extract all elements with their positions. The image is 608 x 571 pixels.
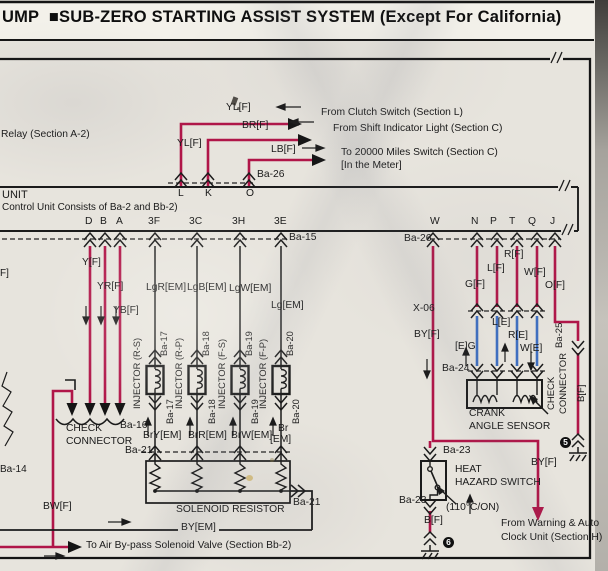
wire-label-we: W[E] — [520, 344, 542, 354]
wire-label-br-1: Br — [278, 424, 288, 434]
terminal-t: T — [509, 217, 515, 227]
terminal-w: W — [430, 217, 440, 227]
crank-sensor-label-2: ANGLE SENSOR — [469, 422, 550, 432]
edge-fragment: F] — [0, 269, 9, 279]
dest-warning-line1: From Warning & Auto — [501, 519, 599, 529]
wire-label-ge: [E]G — [455, 342, 476, 352]
solenoid-resistor-box — [146, 461, 290, 503]
junction-mark — [65, 380, 75, 390]
injector-fp-label: INJECTOR (F-P) — [259, 339, 268, 409]
connector-ba23-top: Ba-23 — [443, 446, 470, 456]
wire-label-lgb: LgB[EM] — [187, 283, 227, 293]
terminal-l: L — [178, 189, 184, 199]
wire-label-lf: L[F] — [487, 264, 505, 274]
check-connector-left-line1: CHECK — [66, 424, 102, 434]
paper-stain — [246, 475, 253, 481]
page-title: UMP ■SUB-ZERO STARTING ASSIST SYSTEM (Ex… — [2, 9, 561, 26]
wire-label-bw: BW[F] — [43, 502, 72, 512]
connector-ba26-top: Ba-26 — [257, 170, 284, 180]
wire-label-brw: BrW[EM] — [231, 431, 272, 441]
wire-label-le: L[E] — [492, 318, 510, 328]
wire-label-yb: YB[F] — [113, 306, 139, 316]
page-word-fragment: UMP — [2, 8, 39, 26]
wiring-diagram-page: UMP ■SUB-ZERO STARTING ASSIST SYSTEM (Ex… — [0, 0, 608, 571]
crank-sensor-label-1: CRANK — [469, 409, 505, 419]
paper-stain — [270, 458, 274, 462]
title-text: SUB-ZERO STARTING ASSIST SYSTEM (Except … — [59, 8, 561, 26]
injector-rp-label: INJECTOR (R-P) — [175, 338, 184, 409]
wire-label-byem: BY[EM] — [178, 523, 219, 533]
connector-ba18-top: Ba-18 — [202, 331, 211, 356]
check-connector-left-line2: CONNECTOR — [66, 437, 132, 447]
heat-switch-label-1: HEAT — [455, 465, 482, 475]
connector-ba18-bottom: Ba-18 — [208, 399, 217, 424]
terminal-d: D — [85, 217, 92, 227]
ground-number-5: 5 — [560, 437, 571, 448]
terminal-a: A — [116, 217, 123, 227]
wire-label-y: Y[F] — [82, 258, 101, 268]
connector-ba14: Ba-14 — [0, 465, 27, 475]
switch-temp-note: (110°C/ON) — [446, 503, 499, 513]
dest-air-bypass: To Air By-pass Solenoid Valve (Section B… — [86, 541, 291, 551]
dest-clutch-switch: From Clutch Switch (Section L) — [321, 108, 463, 118]
connector-ba24: Ba-24 — [442, 364, 469, 374]
heat-switch-label-2: HAZARD SWITCH — [455, 478, 541, 488]
shield-symbol — [2, 372, 13, 446]
ground-number-6: 6 — [443, 537, 454, 548]
dest-miles-switch: To 20000 Miles Switch (Section C) — [341, 148, 498, 158]
connector-ba19-bottom: Ba-19 — [251, 399, 260, 424]
connector-ba15: Ba-15 — [289, 233, 316, 243]
wire-label-lg: Lg[EM] — [271, 301, 304, 311]
dest-miles-note: [In the Meter] — [341, 161, 402, 171]
connector-ba21-row: Ba-21 — [125, 446, 152, 456]
connector-ba17-top: Ba-17 — [160, 331, 169, 356]
terminal-o: O — [246, 189, 254, 199]
terminal-p: P — [490, 217, 497, 227]
terminal-n: N — [471, 217, 478, 227]
wire-label-br-2: [EM] — [270, 435, 291, 445]
wire-label-b: B[F] — [424, 516, 443, 526]
wire-label-by-1: BY[F] — [414, 330, 440, 340]
terminal-k: K — [205, 189, 212, 199]
connector-ba26-bottom: Ba-26 — [404, 234, 431, 244]
connector-ba20-top: Ba-20 — [286, 331, 295, 356]
connector-ba19-top: Ba-19 — [245, 331, 254, 356]
connector-ba20-bottom: Ba-20 — [292, 399, 301, 424]
check-connector-right-line1: CHECK — [547, 377, 557, 410]
solenoid-resistor-label: SOLENOID RESISTOR — [176, 505, 285, 515]
dest-warning-line2: Clock Unit (Section H) — [501, 533, 602, 543]
wire-label-lb: LB[F] — [271, 145, 296, 155]
unit-title: UNIT — [2, 190, 28, 201]
title-bullet-icon: ■ — [49, 8, 59, 26]
wire-label-of: O[F] — [545, 281, 565, 291]
terminal-b: B — [100, 217, 107, 227]
wire-label-g: G[F] — [465, 280, 485, 290]
wire-label-yl-vertical: YL[F] — [177, 139, 202, 149]
wire-label-rf: R[F] — [504, 250, 523, 260]
wire-label-by-2: BY[F] — [531, 458, 557, 468]
dest-shift-indicator: From Shift Indicator Light (Section C) — [333, 124, 502, 134]
wire-label-yr: YR[F] — [97, 282, 123, 292]
wire-label-bry: BrY[EM] — [143, 431, 181, 441]
check-connector-right-line2: CONNECTOR — [559, 353, 569, 414]
connector-ba25: Ba-25 — [555, 323, 565, 348]
terminal-chevrons — [84, 233, 561, 247]
connector-ba21-out: Ba-21 — [293, 498, 320, 508]
wire-label-br: BR[F] — [242, 121, 268, 131]
injector-rs-label: INJECTOR (R-S) — [133, 338, 142, 409]
wire-label-brr: BrR[EM] — [188, 431, 227, 441]
wire-label-lgr: LgR[EM] — [146, 283, 186, 293]
wire-label-wf: W[F] — [524, 268, 546, 278]
relay-label: Relay (Section A-2) — [1, 130, 90, 140]
paper-blemish — [237, 107, 240, 110]
terminal-3h: 3H — [232, 217, 245, 227]
terminal-3c: 3C — [189, 217, 202, 227]
wire-label-b-right: B[F] — [577, 385, 587, 402]
terminal-3e: 3E — [274, 217, 287, 227]
terminal-3f: 3F — [148, 217, 160, 227]
unit-note: Control Unit Consists of Ba-2 and Bb-2) — [2, 203, 178, 213]
connector-x06: X-06 — [413, 304, 435, 314]
terminal-q: Q — [528, 217, 536, 227]
injector-fs-label: INJECTOR (F-S) — [218, 339, 227, 409]
connector-ba23-bottom: Ba-23 — [399, 496, 426, 506]
connector-ba17-bottom: Ba-17 — [166, 399, 175, 424]
wire-label-re: R[E] — [508, 331, 528, 341]
wire-label-lgw: LgW[EM] — [229, 284, 271, 294]
terminal-j: J — [550, 217, 555, 227]
